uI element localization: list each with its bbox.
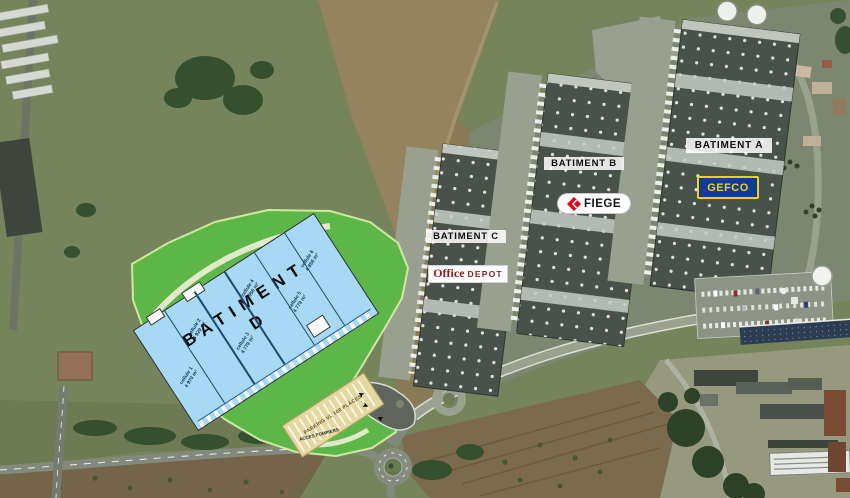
gefco-logo-text: GEFCO xyxy=(707,182,749,194)
office-depot-logo: Office DEPOT xyxy=(429,266,507,282)
batiment-a-label: BATIMENT A xyxy=(686,138,772,153)
office-box xyxy=(306,314,331,337)
batiment-c-label: BATIMENT C xyxy=(426,230,506,243)
utility-box xyxy=(791,297,798,304)
office-depot-word1: Office xyxy=(433,266,464,281)
batiment-b-label: BATIMENT B xyxy=(544,157,624,170)
satellite-terrain xyxy=(0,0,850,498)
office-depot-word2: DEPOT xyxy=(468,269,503,279)
aerial-site-plan: BATIMENT D cellule 14 970 m²cellule 24 9… xyxy=(0,0,850,498)
roundabout xyxy=(374,448,412,486)
water-tank xyxy=(812,266,832,286)
gefco-logo: GEFCO xyxy=(697,176,759,199)
fiege-diamond-icon xyxy=(567,197,581,211)
fiege-logo-text: FIEGE xyxy=(584,198,621,210)
fiege-logo: FIEGE xyxy=(558,194,630,213)
